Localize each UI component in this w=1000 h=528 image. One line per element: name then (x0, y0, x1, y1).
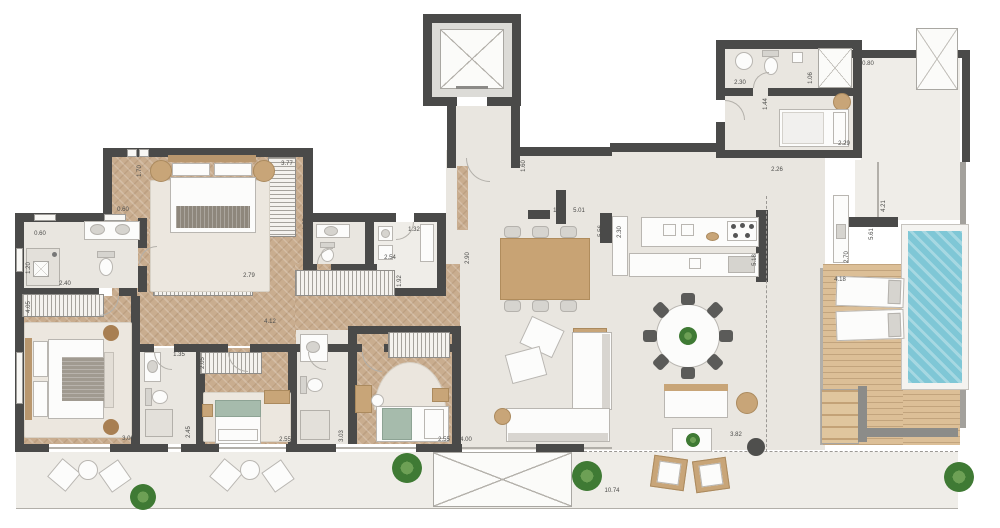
dimension-label: 2.55 (438, 437, 450, 443)
dimension-label: 2.54 (384, 255, 396, 261)
dimension-label: 1.70 (137, 165, 143, 177)
dimension-label: 1.32 (408, 227, 420, 233)
dimension-label: 1.60 (521, 160, 527, 172)
dimension-label: 4.00 (460, 437, 472, 443)
dimension-label: 2.40 (59, 281, 71, 287)
dimension-label: 1.70 (142, 234, 148, 246)
dimension-label: 4.21 (881, 200, 887, 212)
dimension-labels: 1.700.600.601.701.202.404.053.771.351.32… (0, 0, 1000, 528)
dimension-label: 1.44 (763, 98, 769, 110)
dimension-label: 10.74 (604, 488, 619, 494)
dimension-label: 4.12 (264, 319, 276, 325)
dimension-label: 2.05 (200, 357, 206, 369)
dimension-label: 3.06 (122, 436, 134, 442)
dimension-label: 0.60 (117, 207, 129, 213)
dimension-label: 1.20 (553, 208, 565, 214)
dimension-label: 2.79 (243, 273, 255, 279)
dimension-label: 2.29 (838, 141, 850, 147)
dimension-label: 4.05 (26, 301, 32, 313)
dimension-label: 2.90 (465, 252, 471, 264)
dimension-label: 5.56 (598, 225, 604, 237)
dimension-label: 2.30 (617, 226, 623, 238)
dimension-label: 4.18 (834, 277, 846, 283)
dimension-label: 2.55 (279, 437, 291, 443)
dimension-label: 5.01 (573, 208, 585, 214)
dimension-label: 1.20 (26, 262, 32, 274)
dimension-label: 2.26 (771, 167, 783, 173)
floor-plan: 1.700.600.601.701.202.404.053.771.351.32… (0, 0, 1000, 528)
dimension-label: 2.70 (844, 251, 850, 263)
dimension-label: 1.35 (173, 352, 185, 358)
dimension-label: 1.06 (808, 72, 814, 84)
dimension-label: 1.35 (303, 218, 309, 230)
dimension-label: 5.18 (752, 254, 758, 266)
dimension-label: 2.30 (734, 80, 746, 86)
dimension-label: 2.45 (186, 426, 192, 438)
dimension-label: 5.61 (869, 228, 875, 240)
dimension-label: 0.60 (34, 231, 46, 237)
dimension-label: 0.80 (862, 61, 874, 67)
dimension-label: 3.82 (730, 432, 742, 438)
dimension-label: 1.92 (397, 275, 403, 287)
dimension-label: 3.03 (339, 430, 345, 442)
dimension-label: 3.77 (281, 161, 293, 167)
